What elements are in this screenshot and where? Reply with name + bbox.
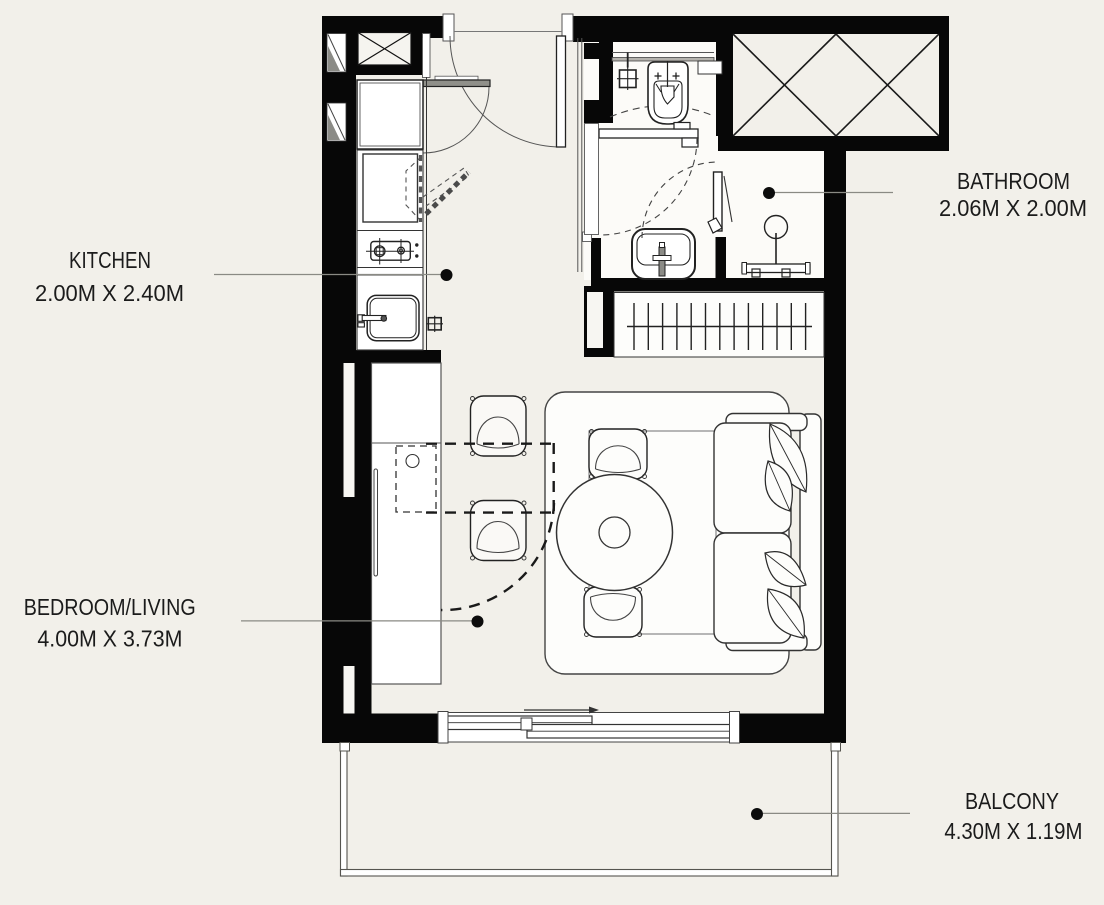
svg-text:4.00M X 3.73M: 4.00M X 3.73M <box>37 626 182 652</box>
svg-text:BEDROOM/LIVING: BEDROOM/LIVING <box>24 594 196 620</box>
svg-text:BATHROOM: BATHROOM <box>957 168 1070 194</box>
svg-text:BALCONY: BALCONY <box>965 788 1059 814</box>
svg-text:KITCHEN: KITCHEN <box>69 247 151 273</box>
svg-text:2.00M X 2.40M: 2.00M X 2.40M <box>35 280 184 306</box>
svg-text:2.06M X 2.00M: 2.06M X 2.00M <box>939 195 1087 221</box>
svg-text:4.30M X 1.19M: 4.30M X 1.19M <box>944 818 1082 844</box>
